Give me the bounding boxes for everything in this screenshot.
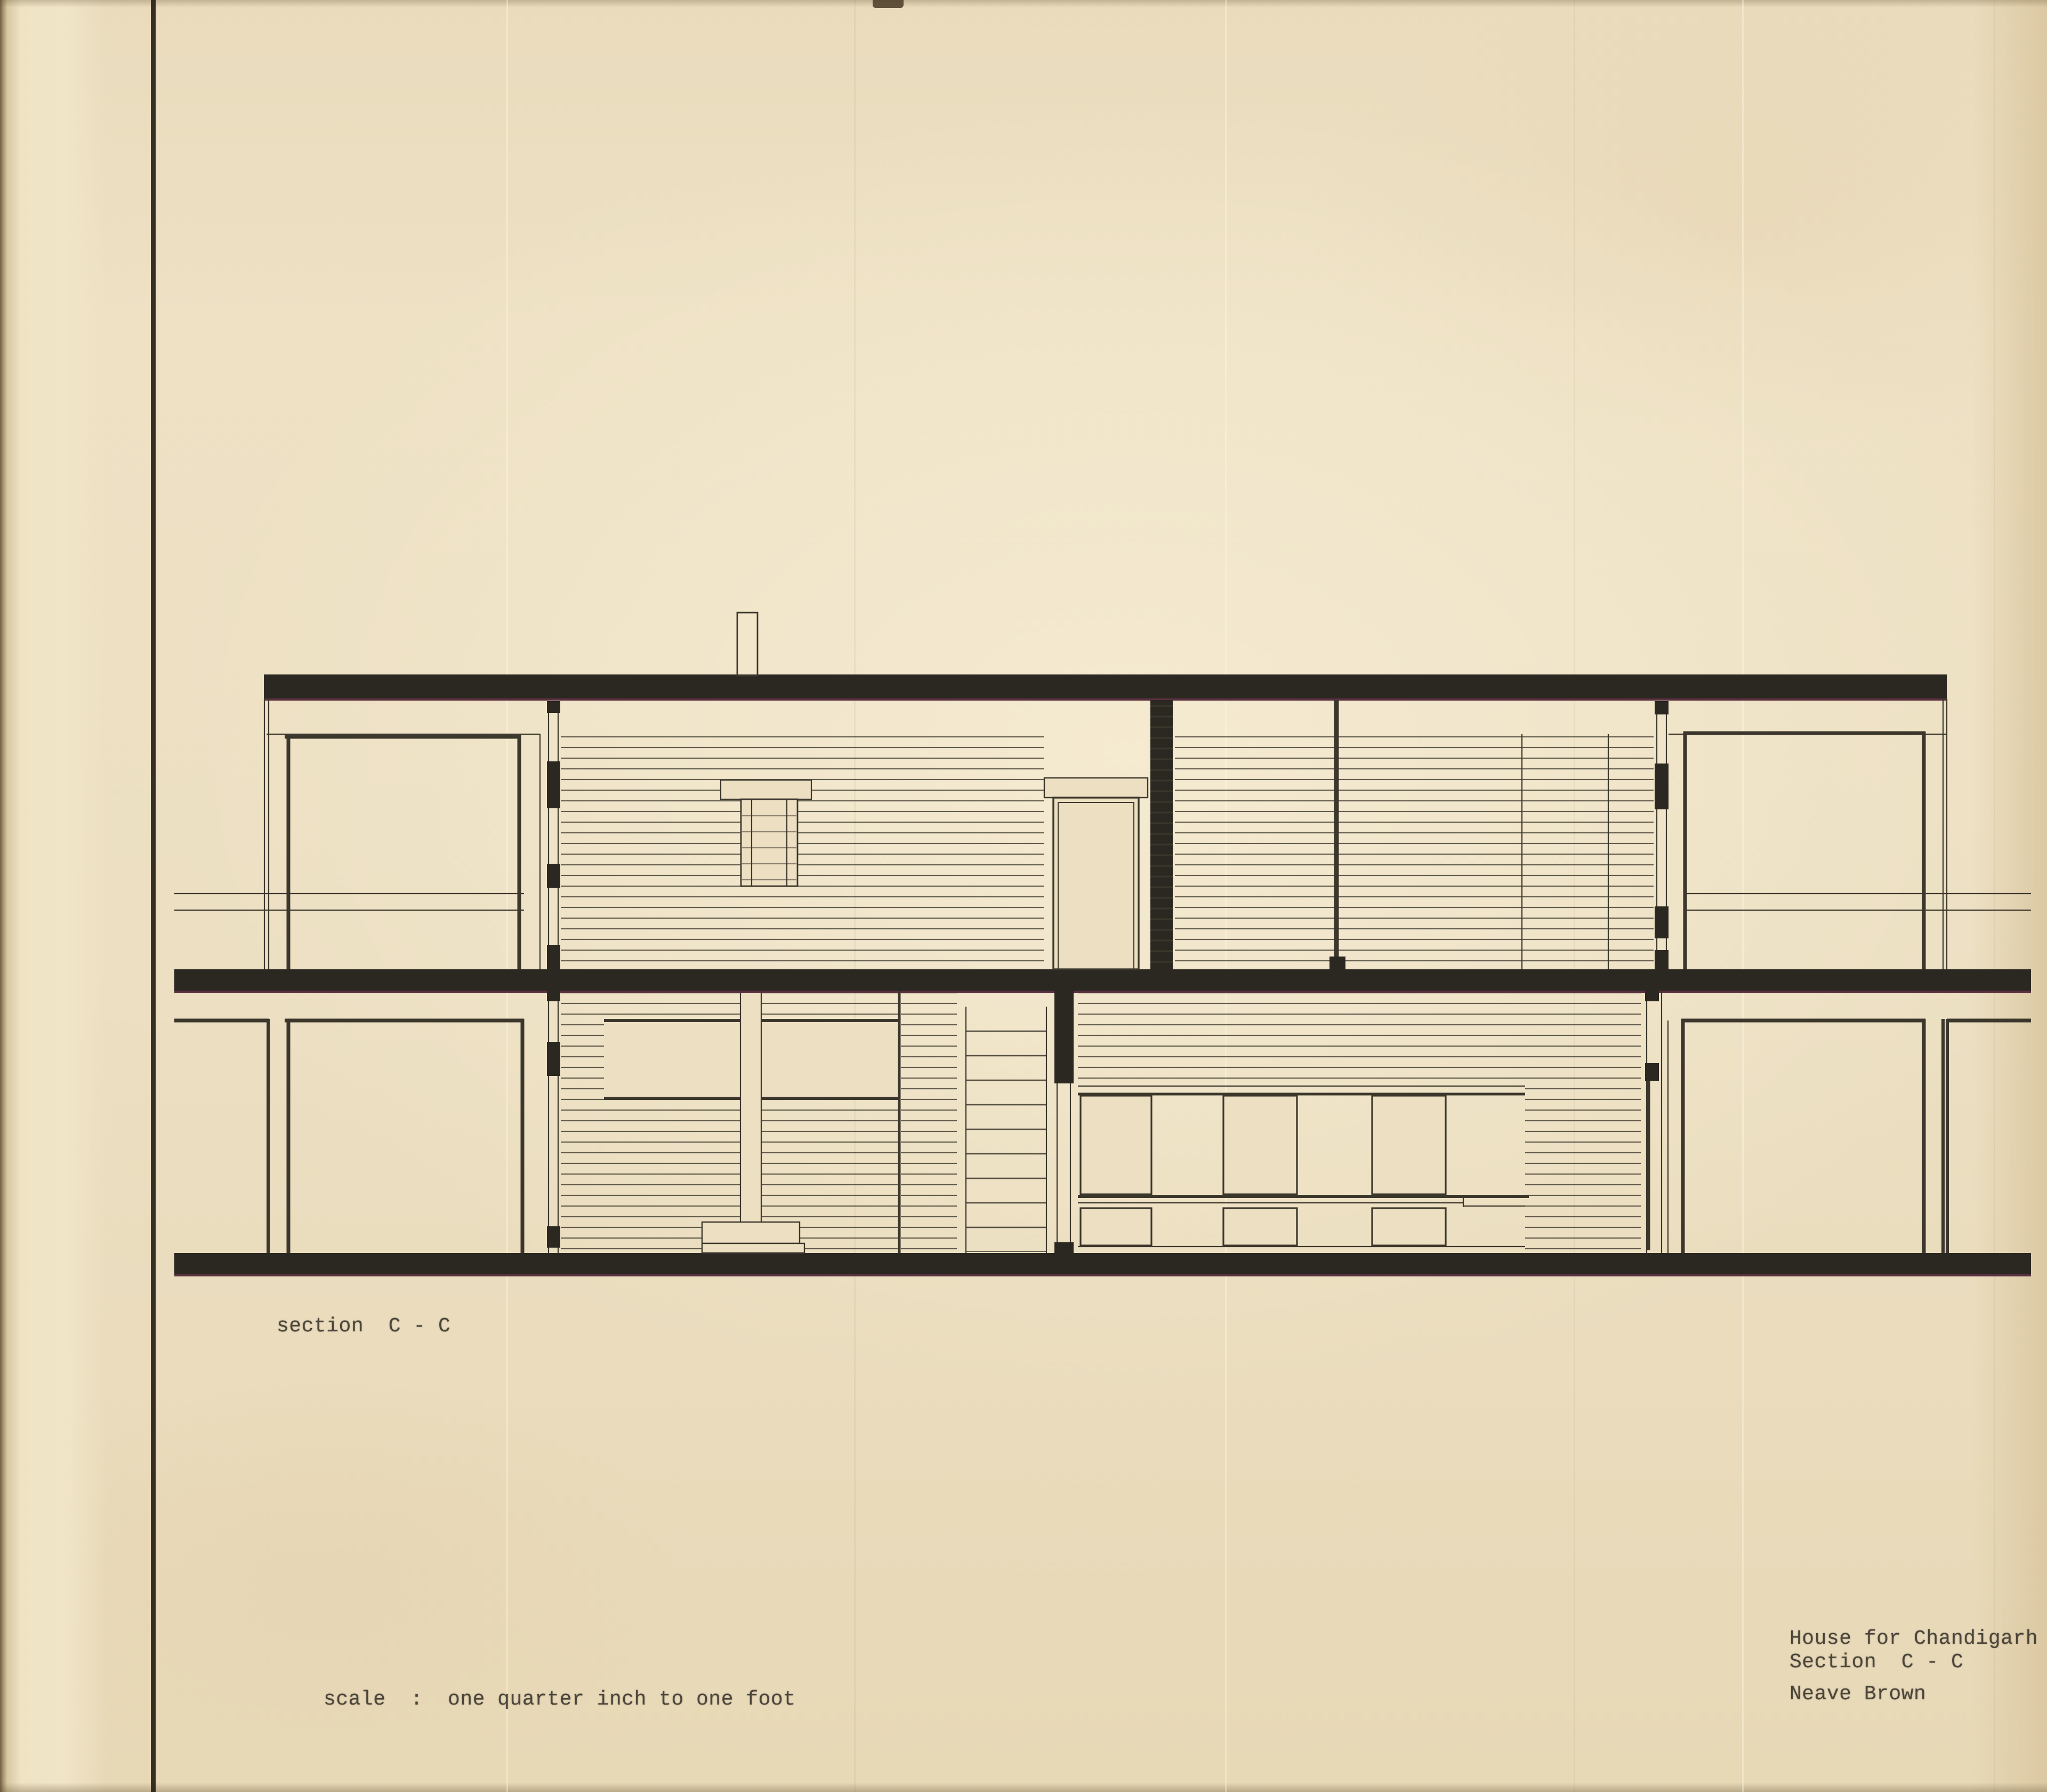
roof-slab: [264, 674, 1947, 701]
section-title: section C - C: [277, 1315, 450, 1338]
cabinet-elevation: [1078, 1086, 1529, 1247]
stair-wall-louvres: [901, 993, 957, 1251]
chimney-flue: [737, 613, 757, 676]
lower-left-mullion: [547, 991, 560, 1253]
upper-louvre-wall-right: [1175, 734, 1654, 967]
upper-right-veranda: [1669, 732, 2031, 969]
building-section-drawing: [0, 0, 2047, 1792]
staircase: [966, 1007, 1046, 1253]
lower-left-veranda: [174, 1019, 524, 1253]
drawing-sheet: section C - C scale : one quarter inch t…: [0, 0, 2047, 1792]
upper-right-mullion: [1655, 701, 1669, 969]
lower-right-mullion: [1645, 991, 1662, 1253]
upper-louvre-wall-left: [561, 734, 1044, 967]
project-title: House for Chandigarh: [1790, 1627, 2038, 1651]
upper-storey: [174, 698, 2031, 969]
upper-section-mullion: [1150, 700, 1173, 969]
lower-storey: [174, 991, 2031, 1253]
first-floor-slab: [174, 969, 2031, 993]
scale-note: scale : one quarter inch to one foot: [324, 1688, 796, 1711]
lower-louvre-wall-living: [1078, 993, 1641, 1084]
lower-louvre-wall-living-right: [1525, 1084, 1641, 1251]
ground-floor-slab: [174, 1253, 2031, 1276]
upper-doorway: [1044, 778, 1148, 969]
lower-right-veranda: [1681, 1019, 2031, 1253]
architect-name: Neave Brown: [1790, 1683, 1926, 1706]
sheet-label: Section C - C: [1790, 1651, 1963, 1674]
upper-left-mullion: [547, 701, 560, 969]
stair-screen-wall: [1054, 991, 1074, 1253]
upper-left-veranda: [174, 735, 524, 969]
